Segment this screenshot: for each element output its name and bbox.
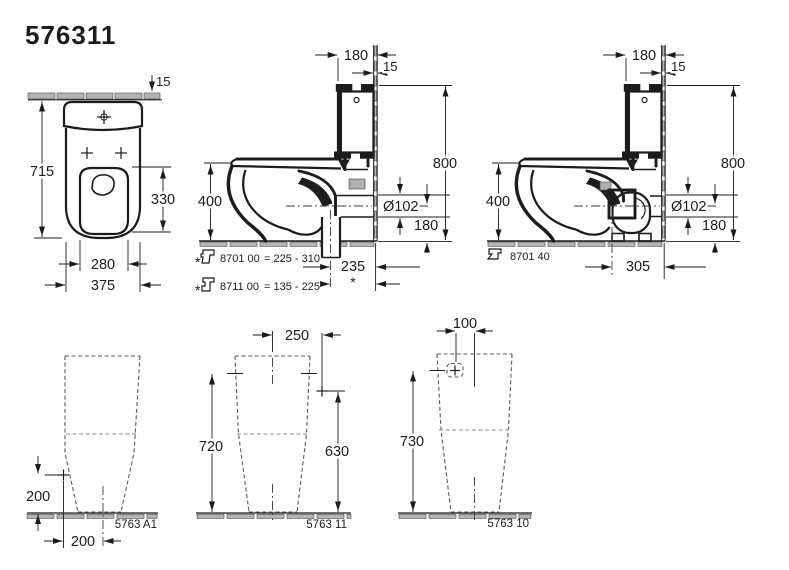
flush-button-icon	[642, 98, 647, 103]
dim-outlet-diameter-value: Ø102	[383, 199, 418, 215]
dim-marker-offset-value: 200	[71, 534, 95, 550]
dim-marker-height-200: 200	[26, 456, 50, 531]
flush-button-icon	[354, 98, 359, 103]
wall-outlet-assembly	[609, 190, 661, 241]
variant-label: 5763 A1	[115, 519, 157, 531]
dim-marker-height-730: 730	[400, 371, 424, 512]
dim-rim-height-400: 400	[486, 163, 520, 240]
note-2-code: 8711 00	[220, 281, 259, 293]
dim-overall-width-value: 375	[91, 278, 115, 294]
dim-depth-715: 715	[30, 101, 62, 238]
note-1-code: 8701 00	[220, 253, 260, 265]
product-number: 576311	[25, 20, 116, 50]
dim-outlet-offset-305: 305	[585, 243, 706, 279]
dim-total-height-value: 800	[433, 156, 457, 172]
connection-marker-icon	[58, 470, 69, 481]
note-1-range: = 225 - 310	[264, 253, 320, 265]
water-spot	[92, 175, 114, 195]
side-view-floor-outlet: 180 15 800 400	[195, 45, 457, 298]
rear-view-5763-10: 100 730 5763 10	[398, 316, 532, 530]
plan-view: 15 715	[28, 74, 175, 294]
floor-outlet-pipe	[321, 216, 341, 258]
dashed-outline	[65, 356, 140, 512]
pipe-adapter-horizontal-icon	[488, 249, 501, 259]
dim-top-offset-value: 100	[453, 316, 477, 332]
marker-reference	[430, 333, 475, 387]
dim-outlet-height-value: 180	[414, 218, 438, 234]
floor-section	[487, 241, 740, 246]
accessory-note-1: * 8701 00 = 225 - 310	[195, 250, 320, 270]
note-1-asterisk: *	[195, 254, 201, 270]
floor-section	[196, 513, 351, 518]
dim-outlet-height-value: 180	[702, 218, 726, 234]
outlet-offset-asterisk: *	[350, 274, 356, 290]
variant-label: 5763 11	[306, 519, 347, 531]
cistern	[622, 84, 663, 171]
pipe-adapter-vertical-icon	[201, 250, 214, 263]
note-2-asterisk: *	[195, 282, 201, 298]
rear-view-5763-11: 720 250 630 5763 11	[196, 328, 351, 531]
dim-total-height-value: 800	[721, 156, 745, 172]
dim-wall-value: 15	[671, 59, 685, 74]
floor-section	[27, 513, 158, 518]
dim-marker-height-value: 730	[400, 434, 424, 450]
dim-marker-offset-200: 200	[44, 534, 121, 550]
note-2-range: = 135 - 225	[264, 281, 320, 293]
cistern-plan	[64, 102, 142, 130]
dim-seat-opening-330: 330	[132, 167, 175, 232]
accessory-note-2: * 8711 00 = 135 - 225	[195, 278, 320, 298]
dim-seat-opening-value: 330	[151, 192, 175, 208]
toilet-installation-drawing: 576311 15	[0, 0, 789, 570]
dim-height-720: 720	[199, 374, 223, 512]
connection-marker-icon	[450, 366, 460, 376]
variant-label: 5763 10	[487, 518, 529, 530]
dim-height-value: 720	[199, 439, 223, 455]
cistern	[334, 84, 375, 171]
dim-outlet-offset-235: 235 *	[303, 243, 420, 291]
dim-wall-15: 15	[152, 74, 170, 91]
pipe-adapter-offset-icon	[202, 278, 214, 291]
dim-cistern-depth-value: 180	[632, 48, 656, 64]
dim-rim-height-400: 400	[198, 163, 232, 240]
flush-button-marker-icon	[97, 110, 111, 124]
marker-reference	[322, 333, 345, 391]
inlet-connector	[349, 179, 365, 189]
side-view-wall-outlet: 180 15 800 400	[486, 45, 745, 279]
dim-inner-width-280: 280	[59, 240, 147, 273]
wall-hatch	[28, 93, 162, 100]
dim-top-offset-value: 250	[285, 328, 309, 344]
dim-top-offset-100: 100	[437, 316, 493, 332]
dim-inner-width-value: 280	[91, 257, 115, 273]
bowl-profile	[228, 159, 373, 241]
bowl-opening-plan	[80, 168, 128, 234]
dim-wall-15-value: 15	[156, 74, 170, 89]
dim-marker-height-630: 630	[325, 392, 349, 512]
note-1-code: 8701 40	[510, 251, 550, 263]
technical-drawing-page: 576311 15	[0, 0, 789, 570]
dim-outlet-offset-value: 235	[341, 259, 365, 275]
dim-wall-value: 15	[383, 59, 397, 74]
dim-rim-height-value: 400	[198, 194, 222, 210]
dim-outlet-diameter-value: Ø102	[671, 199, 706, 215]
dim-rim-height-value: 400	[486, 194, 510, 210]
accessory-note-1: 8701 40	[488, 249, 550, 263]
dim-marker-height-value: 200	[26, 489, 50, 505]
dim-outlet-offset-value: 305	[626, 259, 650, 275]
dim-depth-value: 715	[30, 164, 54, 180]
hinge-marker-icons	[81, 147, 127, 159]
dim-marker-height-value: 630	[325, 444, 349, 460]
dim-cistern-depth-value: 180	[344, 48, 368, 64]
marker-extension	[45, 475, 64, 548]
connection-marker-icon	[317, 386, 328, 397]
dim-top-offset-250: 250	[253, 328, 341, 344]
rear-view-5763-a1: 200 200 5763 A1	[26, 356, 158, 550]
